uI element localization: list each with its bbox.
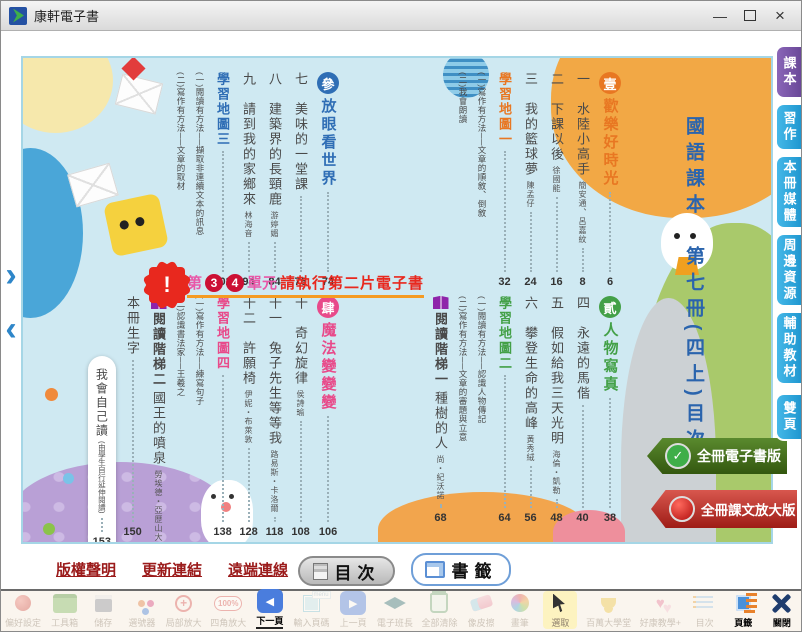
toolbar-prev-page-button[interactable]: 上一頁 <box>338 591 368 629</box>
toc-entry-lesson[interactable]: 六 攀登生命的高峰黃秀絨56 <box>521 296 540 524</box>
maximize-icon[interactable] <box>735 5 765 27</box>
toc-section-2: 貳人物寫真38四 永遠的馬偕40五 假如給我三天光明海倫・凱勒48六 攀登生命的… <box>424 296 621 524</box>
window-title: 康軒電子書 <box>34 6 705 25</box>
toolbar-toolbox-button[interactable]: 工具箱 <box>50 591 80 629</box>
toc-entry-sub: (一)寫作有方法──練寫句子 <box>194 296 206 538</box>
section-number-badge: 貳 <box>599 296 621 318</box>
unit-number-badge: 3 <box>205 274 223 292</box>
flower-decoration <box>43 523 55 535</box>
toc-entry-sub: (二)我會朗讀 <box>457 72 469 288</box>
toolbar-page-tabs-button[interactable]: 頁籤 <box>728 591 758 629</box>
toolbox-icon <box>50 591 80 615</box>
toc-panel-icon <box>313 563 328 580</box>
toc-entry-map[interactable]: 學習地圖二64 <box>495 296 514 524</box>
page-tabs-icon <box>728 591 758 615</box>
toolbar-next-page-button[interactable]: 下一頁 <box>255 589 285 629</box>
toolbar-toc-button[interactable]: 目次 <box>690 591 720 629</box>
toc-entry-section[interactable]: 貳人物寫真38 <box>599 296 621 524</box>
toc-entry-map[interactable]: 學習地圖一32 <box>495 72 514 288</box>
side-tab-workbook[interactable]: 習作 <box>775 103 801 151</box>
copyright-link[interactable]: 版權聲明 <box>56 559 116 580</box>
full-ebook-version-button[interactable]: ✓ 全冊電子書版 <box>647 438 787 474</box>
teaching-plus-icon <box>645 591 675 615</box>
open-book-icon <box>433 296 449 309</box>
side-tab-resources[interactable]: 周邊資源 <box>775 233 801 307</box>
unit-number-badge: 4 <box>226 274 244 292</box>
toolbar-class-leader-button[interactable]: 電子班長 <box>377 591 413 629</box>
toc-entry-lesson[interactable]: 八 建築界的長頸鹿游婷媚84 <box>265 72 284 288</box>
toc-entry-section[interactable]: 參放眼看世界74 <box>317 72 339 288</box>
close-icon[interactable]: × <box>765 5 795 27</box>
app-window: 康軒電子書 — × 國語課本 第七冊(四上)目次 壹歡樂好時光6一 水陸小高手簡… <box>0 0 802 632</box>
toc-entry-bookmark[interactable]: 我會自己讀(由學生自行延伸閱讀)153 <box>88 356 116 544</box>
toc-entry-lesson[interactable]: 四 永遠的馬偕40 <box>573 296 592 524</box>
toc-entry-lesson[interactable]: 一 水陸小高手簡安通、呂嘉紋8 <box>573 72 592 288</box>
toc-entry-sub: (二)寫作有方法──文章的審題與立意 <box>457 296 469 524</box>
update-link[interactable]: 更新連結 <box>142 559 202 580</box>
side-tab-dual-page[interactable]: 雙頁 <box>775 393 801 441</box>
zoom-partial-icon <box>169 591 199 615</box>
toc-entry-lesson[interactable]: 十二 許願椅伊妮・布萊敦128 <box>239 296 258 538</box>
minimize-icon[interactable]: — <box>705 5 735 27</box>
toc-entry-plain[interactable]: 本冊生字150 <box>123 296 142 538</box>
flower-decoration <box>63 473 74 484</box>
toc-entry-section[interactable]: 肆魔法變變變106 <box>317 296 339 538</box>
toolbar-eraser-button[interactable]: 像皮擦 <box>466 591 496 629</box>
toc-entry-ladder[interactable]: 閱讀階梯一種樹的人尚・紀沃諾68 <box>431 296 450 524</box>
zoom-corner-icon <box>213 591 243 615</box>
remote-connect-link[interactable]: 遠端連線 <box>228 559 288 580</box>
toolbar-paint-button[interactable]: 畫筆 <box>505 591 535 629</box>
toc-icon <box>690 591 720 615</box>
toolbar-page-input-button[interactable]: 輸入頁碼 <box>294 591 330 629</box>
yellow-character-decoration <box>103 193 169 257</box>
toc-entry-sub: (二)認識書法家──王羲之 <box>175 296 187 538</box>
record-badge-icon <box>669 496 695 522</box>
forward-arrow-icon[interactable]: › <box>2 261 20 289</box>
toc-entry-section[interactable]: 壹歡樂好時光6 <box>599 72 621 288</box>
toc-entry-lesson[interactable]: 十一 兔子先生等等我路易斯・卡洛爾118 <box>265 296 284 538</box>
tab-table-of-contents[interactable]: 目次 <box>298 556 395 586</box>
settings-icon <box>8 591 38 615</box>
alert-star-icon: ! <box>149 267 185 303</box>
toc-entry-sub: (二)寫作有方法──文章的取材 <box>175 72 187 288</box>
toolbar-close-app-button[interactable]: 關閉 <box>767 591 797 629</box>
toolbar-zoom-partial-button[interactable]: 局部放大 <box>166 591 202 629</box>
clear-all-icon <box>424 591 454 615</box>
toc-section-4: 肆魔法變變變106十 奇幻旋律侯詩瑜108十一 兔子先生等等我路易斯・卡洛爾11… <box>81 296 339 538</box>
envelope-decoration <box>115 73 163 114</box>
bottom-toolbar: 偏好設定工具箱儲存選號器局部放大四角放大下一頁輸入頁碼上一頁電子班長全部清除像皮… <box>1 589 801 631</box>
toc-entry-lesson[interactable]: 五 假如給我三天光明海倫・凱勒48 <box>547 296 566 524</box>
eraser-icon <box>466 591 496 615</box>
toc-section-3: 參放眼看世界74七 美味的一堂課76八 建築界的長頸鹿游婷媚84九 請到我的家鄉… <box>168 72 339 288</box>
side-tab-textbook[interactable]: 課本 <box>775 45 801 99</box>
flower-decoration <box>45 388 58 401</box>
full-text-enlarged-version-button[interactable]: 全冊課文放大版 <box>651 490 797 528</box>
toc-entry-sub: (一)閱讀有方法──認識人物傳記 <box>476 296 488 524</box>
toolbar-zoom-corner-button[interactable]: 四角放大 <box>210 591 246 629</box>
toolbar-settings-button[interactable]: 偏好設定 <box>5 591 41 629</box>
toolbar-save-button[interactable]: 儲存 <box>88 591 118 629</box>
next-page-icon <box>257 589 283 613</box>
toc-entry-sub: (一)閱讀有方法──擷取非連續文本的訊息 <box>194 72 206 288</box>
toolbar-picker-button[interactable]: 選號器 <box>127 591 157 629</box>
back-arrow-icon[interactable]: ‹ <box>2 315 20 343</box>
toc-entry-lesson[interactable]: 三 我的籃球夢陳孟仔24 <box>521 72 540 288</box>
toc-entry-ladder[interactable]: 閱讀階梯二國王的噴泉勞埃德・亞歷山大142 <box>149 296 168 538</box>
title-bar: 康軒電子書 — × <box>1 1 801 31</box>
toc-entry-lesson[interactable]: 二 下課以後徐國能16 <box>547 72 566 288</box>
toolbar-clear-all-button[interactable]: 全部清除 <box>421 591 457 629</box>
toc-entry-lesson[interactable]: 十 奇幻旋律侯詩瑜108 <box>291 296 310 538</box>
paint-icon <box>505 591 535 615</box>
toc-entry-map[interactable]: 學習地圖四138 <box>213 296 232 538</box>
toc-entry-lesson[interactable]: 九 請到我的家鄉來林海音94 <box>239 72 258 288</box>
warning-middle: 單元 <box>247 272 277 293</box>
picker-icon <box>127 591 157 615</box>
envelope-decoration <box>67 163 119 208</box>
toc-section-1: 壹歡樂好時光6一 水陸小高手簡安通、呂嘉紋8二 下課以後徐國能16三 我的籃球夢… <box>450 72 621 288</box>
disc-warning-banner: ! 第 3 4 單元 請執行第二片電子書 <box>149 267 424 303</box>
book-title: 國語課本 第七冊(四上)目次 <box>680 116 707 416</box>
app-logo-icon <box>9 7 27 25</box>
bookmark-panel-icon <box>425 561 445 578</box>
toc-entry-map[interactable]: 學習地圖三102 <box>213 72 232 288</box>
select-icon <box>545 591 575 615</box>
section-number-badge: 參 <box>317 72 339 94</box>
save-icon <box>88 591 118 615</box>
toolbar-teaching-plus-button[interactable]: 好康教學+ <box>640 591 681 629</box>
trophy-icon <box>594 591 624 615</box>
side-tab-aux-material[interactable]: 輔助教材 <box>775 311 801 385</box>
close-app-icon <box>767 591 797 615</box>
toolbar-select-button[interactable]: 選取 <box>543 591 577 629</box>
tab-bookmarks[interactable]: 書籤 <box>411 553 511 586</box>
prev-page-icon <box>340 591 366 615</box>
side-tab-media[interactable]: 本冊媒體 <box>775 155 801 229</box>
toolbar-trophy-button[interactable]: 百萬大學堂 <box>586 591 631 629</box>
toc-entry-sub: (一)寫作有方法──文章的順敘、倒敘 <box>476 72 488 288</box>
page-input-icon <box>297 591 327 615</box>
yellow-blob-decoration <box>21 56 113 133</box>
section-number-badge: 壹 <box>599 72 621 94</box>
check-badge-icon: ✓ <box>665 443 691 469</box>
class-leader-icon <box>380 591 410 615</box>
warning-message: 請執行第二片電子書 <box>280 272 424 293</box>
toc-entry-lesson[interactable]: 七 美味的一堂課76 <box>291 72 310 288</box>
